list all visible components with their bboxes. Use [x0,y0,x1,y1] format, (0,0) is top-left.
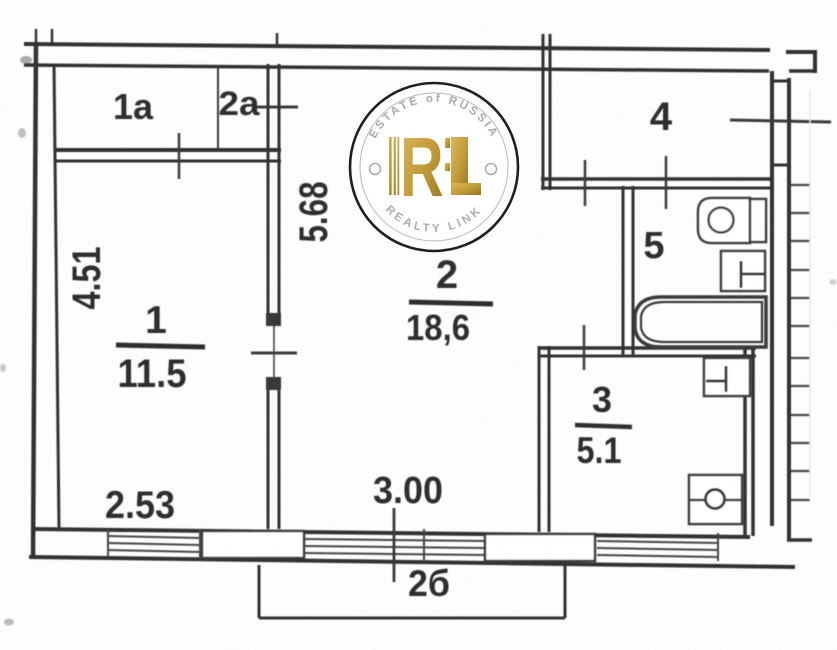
svg-text:5.1: 5.1 [577,430,622,471]
svg-text:2б: 2б [408,563,450,604]
svg-text:5: 5 [643,225,664,267]
svg-text:11.5: 11.5 [118,352,187,396]
svg-text:5.68: 5.68 [292,182,336,243]
svg-text:4.51: 4.51 [65,247,109,310]
svg-text:2а: 2а [219,85,261,123]
svg-text:1: 1 [145,299,167,342]
svg-text:18,6: 18,6 [406,307,470,348]
svg-text:2.53: 2.53 [105,484,175,527]
svg-text:R: R [400,120,444,214]
svg-text:2: 2 [436,253,458,297]
svg-text:1а: 1а [113,86,154,127]
svg-text:3.00: 3.00 [373,470,443,512]
svg-text:4: 4 [650,95,673,139]
svg-text:3: 3 [592,379,612,420]
